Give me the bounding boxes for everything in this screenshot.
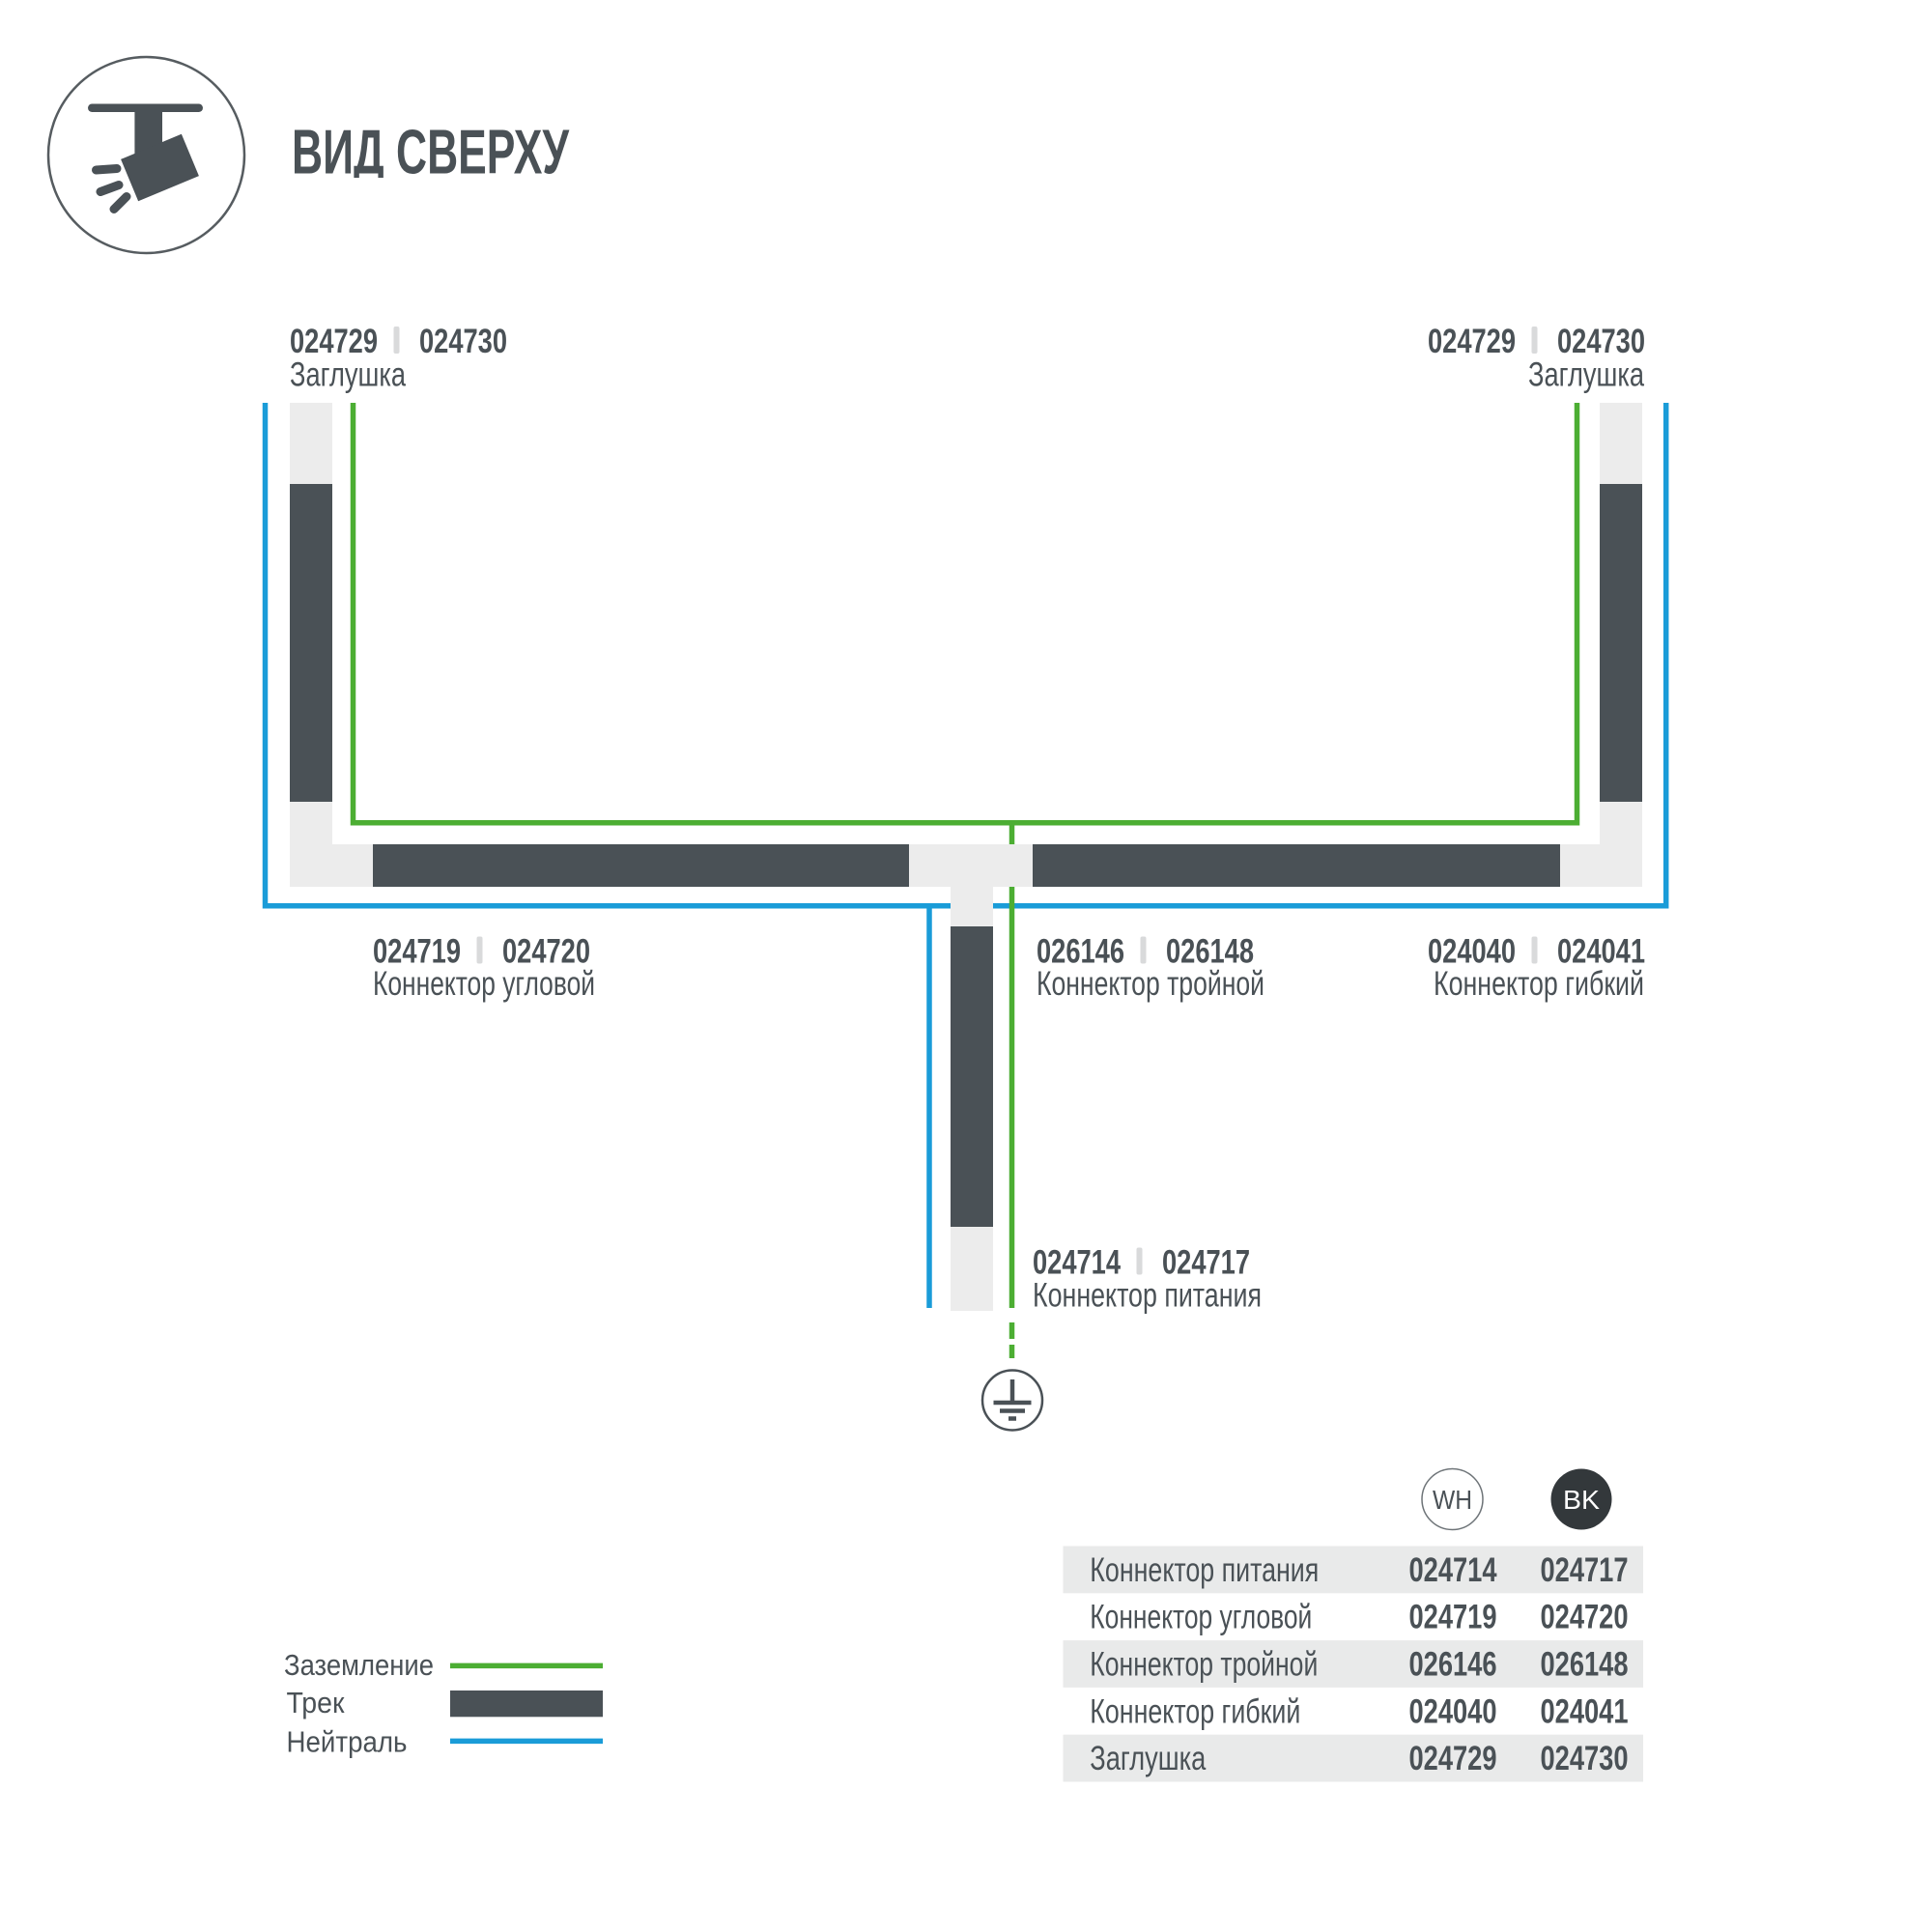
svg-text:Коннектор угловой: Коннектор угловой bbox=[1090, 1599, 1312, 1636]
svg-text:Нейтраль: Нейтраль bbox=[287, 1725, 408, 1759]
svg-text:Трек: Трек bbox=[287, 1686, 345, 1719]
svg-text:ВИД СВЕРХУ: ВИД СВЕРХУ bbox=[292, 117, 570, 187]
svg-text:Коннектор угловой: Коннектор угловой bbox=[373, 965, 595, 1003]
svg-text:024719: 024719 bbox=[1409, 1599, 1497, 1636]
svg-text:Коннектор гибкий: Коннектор гибкий bbox=[1434, 965, 1644, 1003]
svg-text:Заглушка: Заглушка bbox=[1528, 356, 1644, 394]
svg-text:024730: 024730 bbox=[1557, 323, 1645, 360]
svg-text:026146: 026146 bbox=[1409, 1646, 1497, 1684]
svg-text:024717: 024717 bbox=[1541, 1551, 1629, 1589]
svg-text:Заглушка: Заглушка bbox=[290, 356, 406, 394]
svg-text:024729: 024729 bbox=[290, 323, 378, 360]
svg-text:Коннектор тройной: Коннектор тройной bbox=[1037, 965, 1264, 1003]
svg-text:024730: 024730 bbox=[419, 323, 507, 360]
svg-text:Заземление: Заземление bbox=[284, 1648, 434, 1682]
svg-text:026148: 026148 bbox=[1541, 1646, 1629, 1684]
svg-text:024729: 024729 bbox=[1409, 1740, 1497, 1777]
svg-text:Заглушка: Заглушка bbox=[1090, 1740, 1206, 1777]
svg-text:BK: BK bbox=[1563, 1485, 1600, 1515]
svg-text:Коннектор тройной: Коннектор тройной bbox=[1090, 1646, 1318, 1684]
svg-text:Коннектор питания: Коннектор питания bbox=[1033, 1277, 1262, 1315]
svg-text:WH: WH bbox=[1433, 1485, 1472, 1515]
svg-text:024041: 024041 bbox=[1541, 1692, 1629, 1730]
svg-text:024720: 024720 bbox=[1541, 1599, 1629, 1636]
svg-text:Коннектор гибкий: Коннектор гибкий bbox=[1090, 1692, 1300, 1730]
svg-text:024729: 024729 bbox=[1428, 323, 1516, 360]
svg-text:024040: 024040 bbox=[1409, 1692, 1497, 1730]
svg-text:024714: 024714 bbox=[1409, 1551, 1497, 1589]
svg-text:Коннектор питания: Коннектор питания bbox=[1090, 1551, 1319, 1589]
svg-text:024730: 024730 bbox=[1541, 1740, 1629, 1777]
